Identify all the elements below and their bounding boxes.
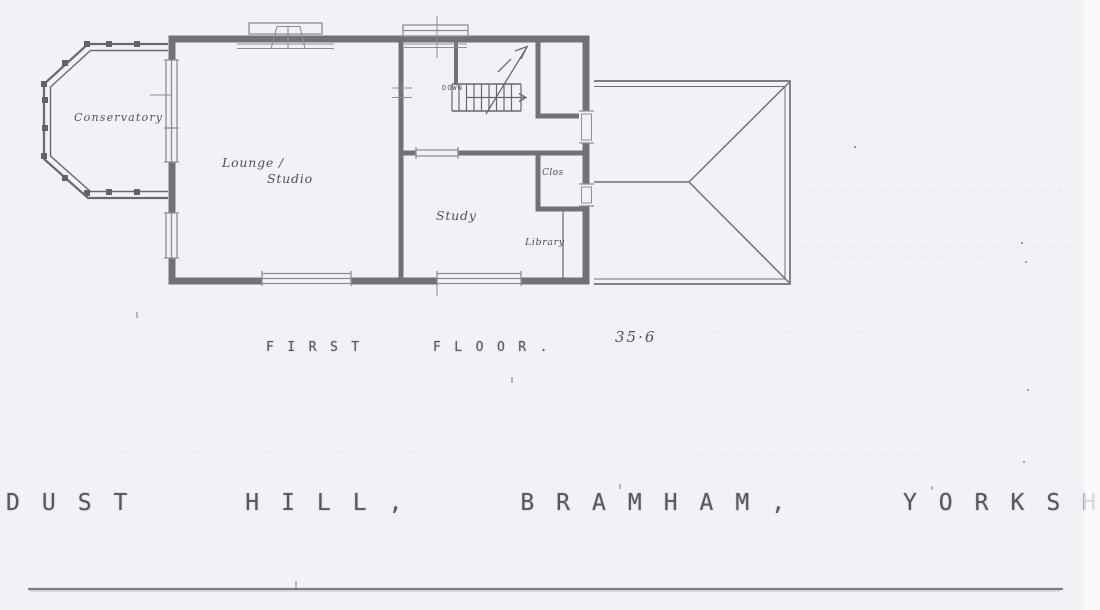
scan-streaks <box>120 147 1078 455</box>
scan-edge-band <box>1084 0 1100 610</box>
left-wall-window-upper <box>164 60 179 162</box>
roof-hip-lines <box>689 83 789 283</box>
wall-opening-masks <box>164 60 594 286</box>
closet-wall <box>538 153 586 209</box>
windows-and-doors <box>150 16 594 296</box>
drawing-caption-title: FIRST FLOOR. <box>266 341 561 354</box>
left-wall-window-lower <box>164 213 179 258</box>
bottom-wall-window-left <box>262 271 351 286</box>
address-line: DUST HILL, BRAMHAM, YORKSH <box>6 492 1100 515</box>
landing-room-wall <box>538 39 586 116</box>
scanned-floor-plan-page: Conservatory Lounge / Studio Study Clos … <box>0 0 1100 610</box>
bottom-border-rule <box>28 589 1063 591</box>
room-label-conservatory: Conservatory <box>74 112 163 123</box>
staircase <box>452 47 527 115</box>
room-label-study: Study <box>436 210 477 223</box>
stairs-down-label: DOWN <box>442 85 463 92</box>
room-label-lounge-line2: Studio <box>267 173 313 186</box>
room-label-closet: Clos <box>542 169 564 178</box>
room-label-lounge-line1: Lounge / <box>222 157 284 170</box>
floor-plan-drawing <box>0 0 1100 610</box>
drawing-caption-dimension: 35·6 <box>615 330 656 345</box>
bottom-wall-window-right <box>437 271 521 286</box>
room-label-library: Library <box>525 238 565 248</box>
roof-plan <box>594 81 790 284</box>
